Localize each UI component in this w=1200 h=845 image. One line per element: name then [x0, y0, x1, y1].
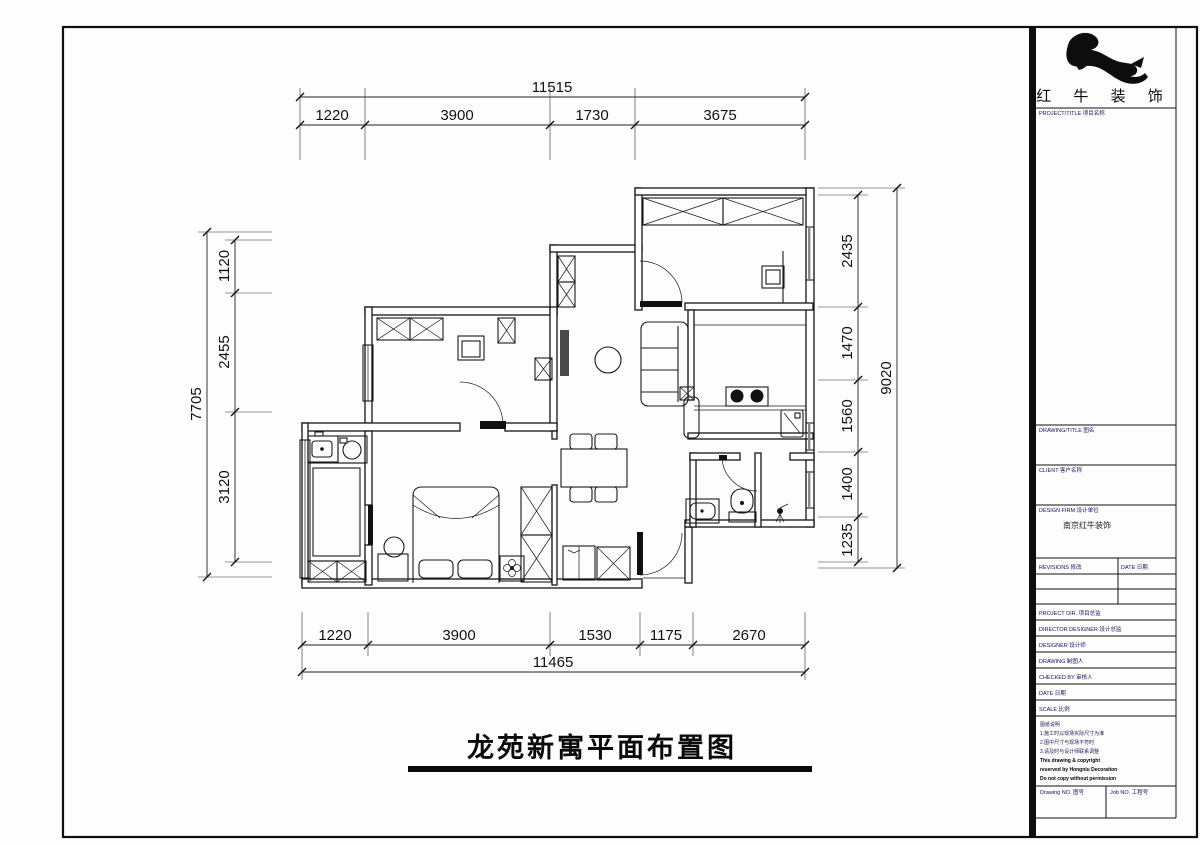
floor-plan [300, 188, 814, 588]
plan-title: 龙苑新寓平面布置图 [467, 732, 737, 763]
project-title-label: PROJECT/TITLE 项目名称 [1039, 109, 1105, 117]
dim-bottom: 1220 3900 1530 1175 2670 11465 [318, 627, 765, 671]
revisions-label: REVISIONS 修改 [1039, 563, 1082, 571]
stove [726, 387, 768, 406]
dim-top-seg2: 3900 [440, 107, 473, 124]
note-line-6: reserved by Hongniu Decoration [1040, 767, 1117, 773]
plan-title-group: 龙苑新寓平面布置图 [408, 732, 812, 772]
row-scale: SCALE 比例 [1039, 705, 1070, 713]
sofa [641, 322, 688, 406]
note-line-7: Do not copy without permission [1040, 776, 1116, 782]
dim-right-total: 9020 [878, 361, 895, 394]
bed [413, 487, 499, 583]
sheet-svg: 11515 1220 3900 1730 3675 1220 3900 1530… [0, 0, 1200, 845]
sheet-border [63, 27, 1197, 837]
dim-bottom-total: 11465 [533, 654, 574, 671]
desk-bedroom1 [762, 251, 784, 303]
dim-top: 11515 1220 3900 1730 3675 [315, 79, 736, 124]
note-line-3: 2.图中尺寸与现场不符时 [1040, 739, 1094, 746]
nightstand-bedroom2 [458, 336, 484, 360]
dim-left-total: 7705 [188, 387, 205, 420]
dim-top-seg4: 3675 [703, 107, 736, 124]
revisions-date-label: DATE 日期 [1121, 564, 1148, 571]
note-line-2: 1.施工时以现场实际尺寸为准 [1040, 730, 1104, 737]
row-drawing: DRAWING 制图人 [1039, 657, 1084, 665]
walls [302, 188, 814, 588]
toilet [729, 489, 756, 522]
row-project-dir: PROJECT DIR. 项目总监 [1039, 609, 1101, 617]
job-no-label: Job NO. 工程号 [1110, 788, 1149, 796]
drawing-sheet: 11515 1220 3900 1730 3675 1220 3900 1530… [0, 0, 1200, 845]
hall-shelf [560, 330, 569, 376]
dim-top-seg3: 1730 [575, 107, 608, 124]
dim-right-seg1: 2435 [839, 234, 856, 267]
notes-block: 图纸说明 1.施工时以现场实际尺寸为准 2.图中尺寸与现场不符时 3.请及时与设… [1040, 721, 1117, 782]
client-label: CLIENT 客户名称 [1039, 466, 1082, 474]
brand-logo-bull [1066, 33, 1148, 84]
dining-table [561, 434, 627, 502]
brand-name: 红 牛 装 饰 [1036, 88, 1172, 105]
dim-left: 1120 2455 3120 7705 [188, 250, 233, 504]
plant-stool [500, 556, 524, 581]
dim-right-seg3: 1560 [839, 399, 856, 432]
row-date: DATE 日期 [1039, 690, 1066, 697]
row-designer: DESIGNER 设计师 [1039, 641, 1086, 649]
dim-left-seg2: 2455 [216, 335, 233, 368]
title-underline [408, 766, 812, 772]
design-firm-value: 南京红牛装饰 [1063, 520, 1111, 530]
titleblock-left-bar [1029, 27, 1036, 837]
dim-bottom-seg5: 2670 [732, 627, 765, 644]
entry-cabinet [563, 546, 595, 580]
row-director-designer: DIRECTOR DESIGNER 设计总监 [1039, 625, 1122, 633]
design-firm-label: DESIGN FIRM 设计单位 [1039, 506, 1099, 514]
note-line-5: This drawing & copyright [1040, 758, 1100, 764]
note-line-4: 3.请及时与设计师联系调整 [1040, 748, 1099, 755]
washing-machine [338, 436, 367, 463]
note-line-1: 图纸说明 [1040, 721, 1060, 728]
dim-bottom-seg4: 1175 [650, 627, 682, 644]
door-bedroom1 [640, 261, 682, 307]
door-entry [637, 532, 685, 578]
side-table [595, 347, 621, 373]
dim-top-seg1: 1220 [315, 107, 348, 124]
dim-left-seg1: 1120 [216, 250, 233, 282]
balcony-cabinet [308, 463, 365, 561]
dim-left-seg3: 3120 [216, 470, 233, 503]
row-checked-by: CHECKED BY 审核人 [1039, 673, 1093, 681]
drawing-no-label: Drawing NO. 图号 [1040, 788, 1085, 796]
dim-top-total: 11515 [532, 79, 573, 96]
drawing-title-label: DRAWING/TITLE 图名 [1039, 426, 1094, 434]
dim-bottom-seg3: 1530 [578, 627, 611, 644]
dim-bottom-seg1: 1220 [318, 627, 351, 644]
nightstand-lamp [378, 537, 408, 581]
dim-right: 2435 1470 1560 1400 1235 9020 [839, 234, 895, 556]
door-bedroom2 [460, 382, 506, 429]
door-balcony-sliding [368, 505, 373, 545]
laundry-sink [308, 432, 338, 462]
dim-right-seg5: 1235 [839, 523, 856, 556]
dim-right-seg4: 1400 [839, 467, 856, 500]
title-block: 红 牛 装 饰 PROJECT/TITLE 项目名称 DRAWING/TITLE… [1036, 33, 1176, 818]
dim-bottom-seg2: 3900 [442, 627, 475, 644]
dim-right-seg2: 1470 [839, 326, 856, 359]
